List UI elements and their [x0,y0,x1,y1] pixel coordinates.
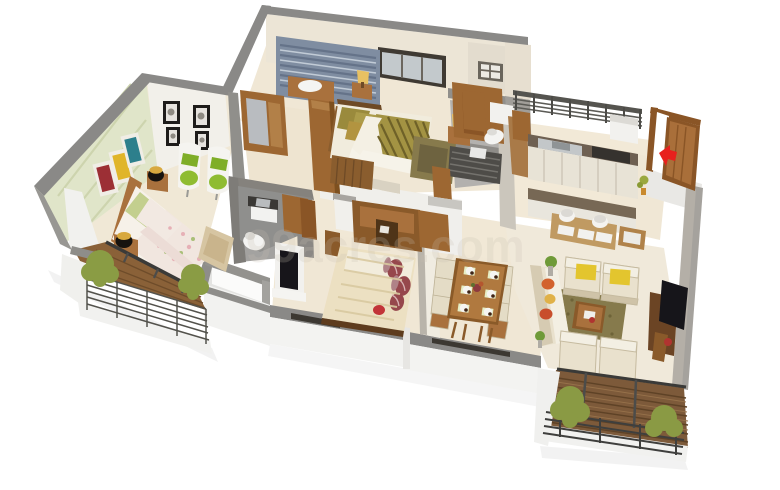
svg-text:99acres.com: 99acres.com [246,220,525,272]
